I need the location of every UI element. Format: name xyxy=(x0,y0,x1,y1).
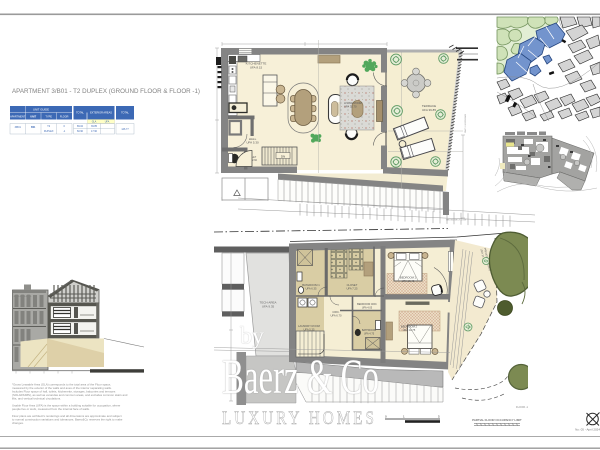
svg-text:T2: T2 xyxy=(47,125,50,128)
svg-text:UFA 8.15: UFA 8.15 xyxy=(250,66,263,70)
svg-text:GROSS EXT. LOW: GROSS EXT. LOW xyxy=(464,114,466,134)
svg-text:APARTMENT: APARTMENT xyxy=(10,115,26,118)
svg-text:UNIT: UNIT xyxy=(30,115,36,118)
svg-text:GROSS SECT. LOW: GROSS SECT. LOW xyxy=(446,220,467,222)
svg-text:TOTAL: TOTAL xyxy=(76,112,84,115)
svg-text:UFA 4.75: UFA 4.75 xyxy=(364,332,375,335)
svg-text:UFA 32.70: UFA 32.70 xyxy=(344,105,357,109)
svg-text:60.90: 60.90 xyxy=(77,130,84,133)
svg-text:changes.: changes. xyxy=(12,421,24,425)
svg-text:LUXURY HOMES: LUXURY HOMES xyxy=(222,408,377,429)
svg-text:LIVING ROOM: LIVING ROOM xyxy=(344,101,363,105)
svg-text:UFA 6.35: UFA 6.35 xyxy=(305,287,317,291)
svg-text:LAUNDRY ROOM: LAUNDRY ROOM xyxy=(298,324,321,328)
svg-text:1: 1 xyxy=(403,415,405,419)
svg-text:by: by xyxy=(240,324,264,350)
svg-text:UFA: UFA xyxy=(105,121,110,124)
svg-text:PARTIAL FLOOR OCCUPANCY LIMIT: PARTIAL FLOOR OCCUPANCY LIMIT xyxy=(472,418,522,422)
svg-text:UFA 13.75: UFA 13.75 xyxy=(403,328,416,332)
svg-text:UFA 13.40: UFA 13.40 xyxy=(402,279,415,283)
svg-text:lifts, and vertical technical: lifts, and vertical technical circulatio… xyxy=(12,397,61,401)
svg-text:UFA 6.70: UFA 6.70 xyxy=(330,314,342,318)
svg-text:CIRC.: CIRC. xyxy=(332,310,340,314)
svg-text:FLOOR: FLOOR xyxy=(60,115,69,118)
svg-text:CLOSET: CLOSET xyxy=(347,283,358,287)
svg-text:5: 5 xyxy=(438,415,440,419)
svg-text:TYPE: TYPE xyxy=(45,115,52,118)
svg-text:BEDROOM 2: BEDROOM 2 xyxy=(401,325,418,329)
svg-text:BEDROOM 1: BEDROOM 1 xyxy=(400,276,417,280)
svg-text:BATHROOM 1: BATHROOM 1 xyxy=(302,283,320,287)
svg-text:UFA 4.05: UFA 4.05 xyxy=(362,306,373,309)
svg-text:No: 05 - April 2024: No: 05 - April 2024 xyxy=(575,428,600,432)
svg-text:DUPLEX: DUPLEX xyxy=(44,130,54,133)
svg-text:DN: DN xyxy=(281,154,285,158)
svg-text:146.77: 146.77 xyxy=(121,128,129,131)
svg-text:FLOOR -1: FLOOR -1 xyxy=(516,405,529,409)
svg-text:UFA 39.85: UFA 39.85 xyxy=(422,108,436,112)
svg-text:GLA: GLA xyxy=(92,121,97,124)
svg-text:UFA 5.30: UFA 5.30 xyxy=(246,141,259,145)
svg-text:17.90: 17.90 xyxy=(91,130,98,133)
svg-text:to normal construction variati: to normal construction variations and to… xyxy=(12,418,123,422)
svg-text:89.02: 89.02 xyxy=(77,125,84,128)
svg-text:UFA 7.25: UFA 7.25 xyxy=(346,287,358,291)
svg-text:APARTMENT 3/B01 - T2 DUPLEX (G: APARTMENT 3/B01 - T2 DUPLEX (GROUND FLOO… xyxy=(12,88,200,95)
svg-text:B01: B01 xyxy=(31,126,36,129)
svg-text:0: 0 xyxy=(385,415,387,419)
svg-text:39.85: 39.85 xyxy=(91,125,98,128)
svg-text:-1: -1 xyxy=(63,130,66,133)
svg-text:UNIT GUIDE: UNIT GUIDE xyxy=(33,108,49,112)
svg-text:3/B01: 3/B01 xyxy=(15,126,22,129)
svg-text:Baerz & Co: Baerz & Co xyxy=(222,348,379,404)
svg-text:0: 0 xyxy=(64,125,66,128)
svg-text:TOTAL: TOTAL xyxy=(121,112,129,115)
svg-text:UFA 9.35: UFA 9.35 xyxy=(262,305,275,309)
svg-text:EXTERIOR AREAS: EXTERIOR AREAS xyxy=(90,112,112,115)
svg-text:people live or work, measured: people live or work, measured from the i… xyxy=(12,407,90,411)
